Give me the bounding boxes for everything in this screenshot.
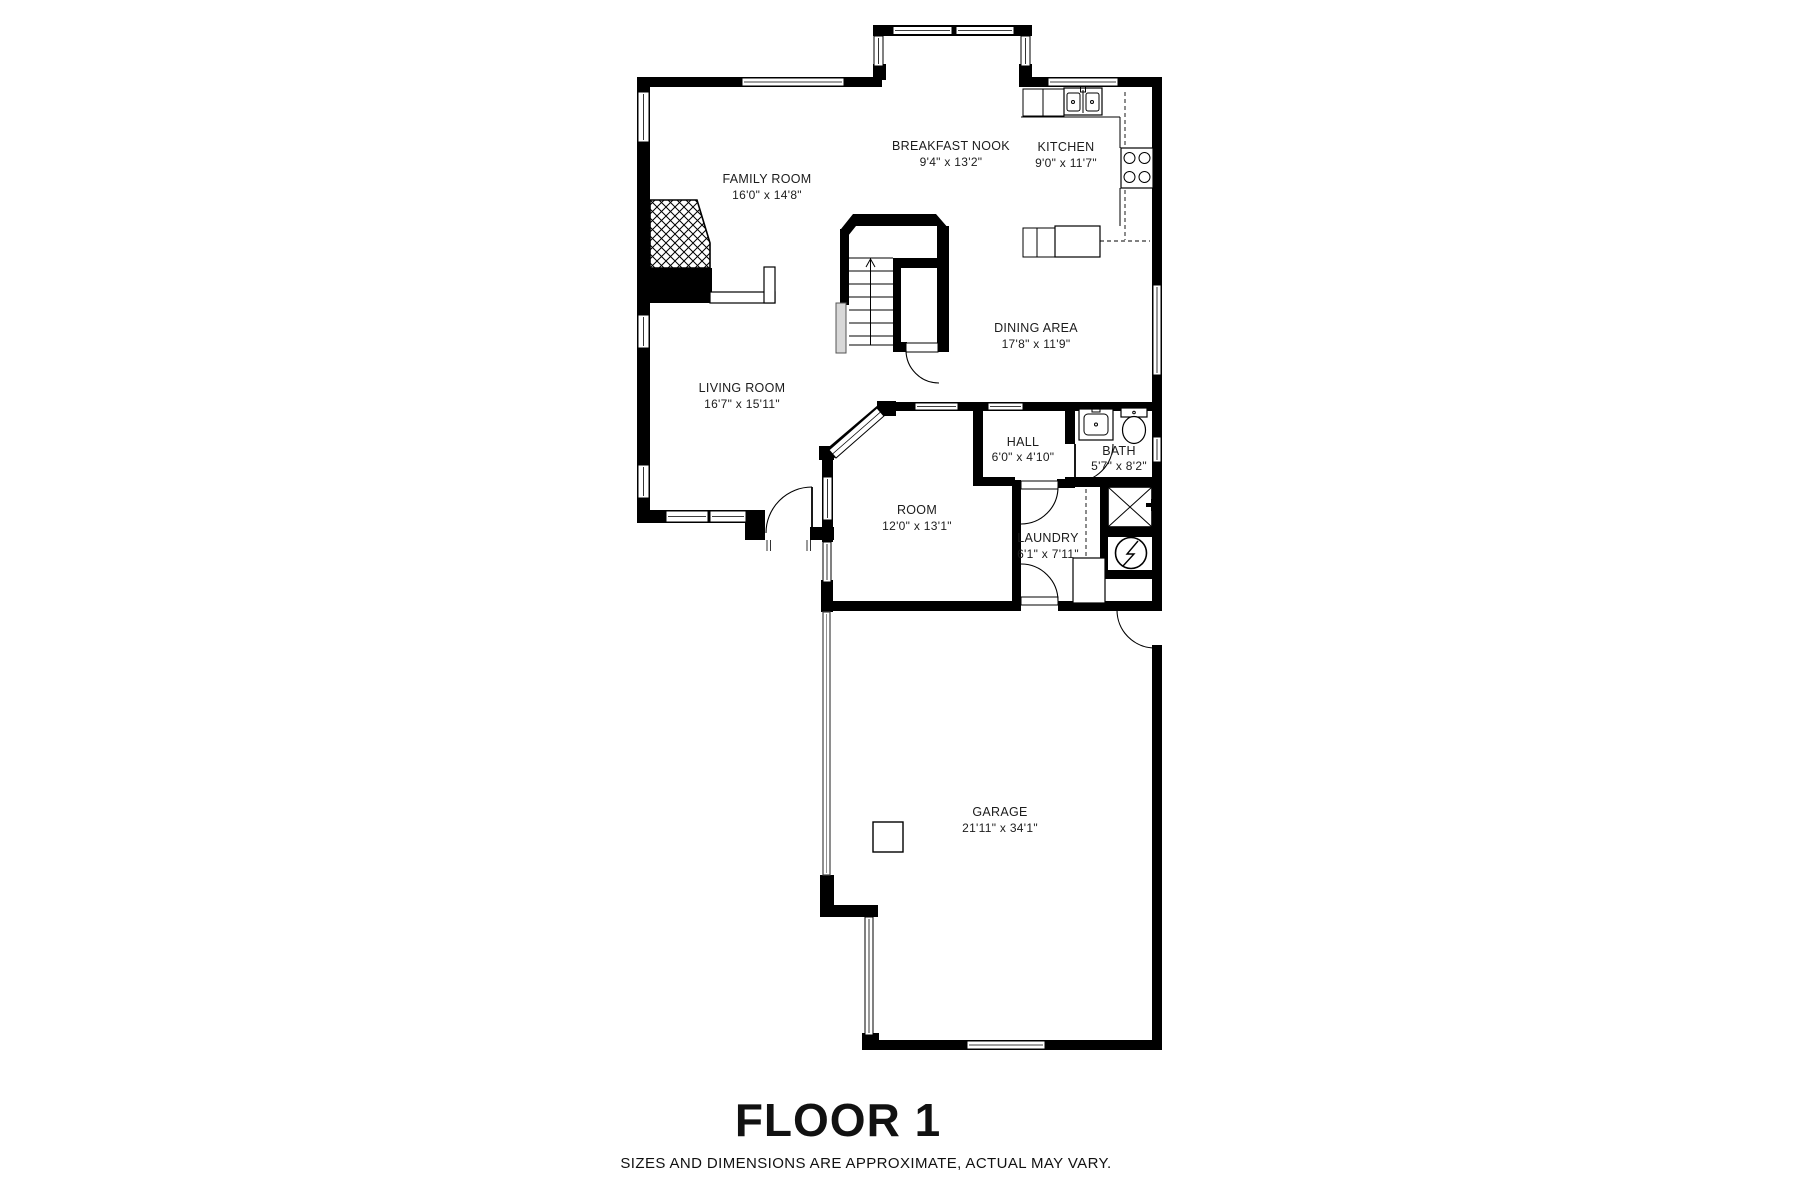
windows [638,27,1161,1050]
floor-plan-drawing: FAMILY ROOM 16'0" x 14'8" BREAKFAST NOOK… [0,0,1800,1200]
laundry-door [1021,481,1058,524]
exterior-walls [637,25,1162,1050]
svg-text:6'1" x 7'11": 6'1" x 7'11" [1017,547,1079,561]
toilet [1121,408,1147,444]
svg-text:12'0" x 13'1": 12'0" x 13'1" [882,519,952,533]
room-label-living-room: LIVING ROOM 16'7" x 15'11" [699,381,786,411]
svg-text:9'0" x 11'7": 9'0" x 11'7" [1035,156,1097,170]
svg-text:LAUNDRY: LAUNDRY [1017,531,1079,545]
closet-door-leaf [906,343,938,352]
svg-text:BREAKFAST NOOK: BREAKFAST NOOK [892,139,1010,153]
floor-title: FLOOR 1 [735,1094,941,1146]
staircase [836,214,949,383]
stair-treads [849,258,893,345]
svg-text:GARAGE: GARAGE [972,805,1027,819]
svg-text:21'11" x 34'1": 21'11" x 34'1" [962,821,1038,835]
bath-fixtures [1079,406,1147,444]
room-label-kitchen: KITCHEN 9'0" x 11'7" [1035,140,1097,170]
laundry-garage-door [1021,564,1058,605]
kitchen-sink [1064,86,1102,115]
entry-step [767,540,811,551]
front-door [766,487,812,551]
svg-text:DINING AREA: DINING AREA [994,321,1078,335]
room-label-garage: GARAGE 21'11" x 34'1" [962,805,1038,835]
closet-door-swing [906,350,939,383]
svg-text:FAMILY ROOM: FAMILY ROOM [723,172,812,186]
svg-text:9'4" x 13'2": 9'4" x 13'2" [920,155,983,169]
svg-text:ROOM: ROOM [897,503,937,517]
room-label-breakfast-nook: BREAKFAST NOOK 9'4" x 13'2" [892,139,1010,169]
room-label-laundry: LAUNDRY 6'1" x 7'11" [1017,531,1079,561]
kitchen-fixtures [1021,86,1153,257]
room-label-hall: HALL 6'0" x 4'10" [992,435,1055,464]
room-label-room: ROOM 12'0" x 13'1" [882,503,952,533]
svg-text:HALL: HALL [1007,435,1039,449]
svg-text:KITCHEN: KITCHEN [1038,140,1095,154]
disclaimer-text: SIZES AND DIMENSIONS ARE APPROXIMATE, AC… [620,1155,1111,1172]
bath-vanity [1079,406,1113,440]
furnace-unit [1108,487,1154,527]
kitchen-island-counter [1055,226,1100,257]
room-label-bath: BATH 5'7" x 8'2" [1091,444,1147,473]
utility-fixtures [1073,487,1154,603]
floor-plan-page: FAMILY ROOM 16'0" x 14'8" BREAKFAST NOOK… [0,0,1800,1200]
laundry-appliance [1073,558,1105,603]
stair-opening [836,303,846,353]
svg-text:16'0" x 14'8": 16'0" x 14'8" [732,188,802,202]
water-heater [1116,538,1147,569]
svg-text:LIVING ROOM: LIVING ROOM [699,381,786,395]
garage-post [873,822,903,852]
svg-text:5'7" x 8'2": 5'7" x 8'2" [1091,459,1147,473]
garage-fixtures [873,822,903,852]
svg-text:17'8" x 11'9": 17'8" x 11'9" [1002,337,1071,351]
room-label-dining-area: DINING AREA 17'8" x 11'9" [994,321,1078,351]
hearth-ledge-side [764,267,775,303]
svg-text:6'0" x 4'10": 6'0" x 4'10" [992,450,1055,464]
svg-text:16'7" x 15'11": 16'7" x 15'11" [704,397,780,411]
svg-text:BATH: BATH [1102,444,1136,458]
room-label-family-room: FAMILY ROOM 16'0" x 14'8" [723,172,812,202]
stove [1121,148,1153,188]
garage-exterior-door [1117,610,1155,648]
